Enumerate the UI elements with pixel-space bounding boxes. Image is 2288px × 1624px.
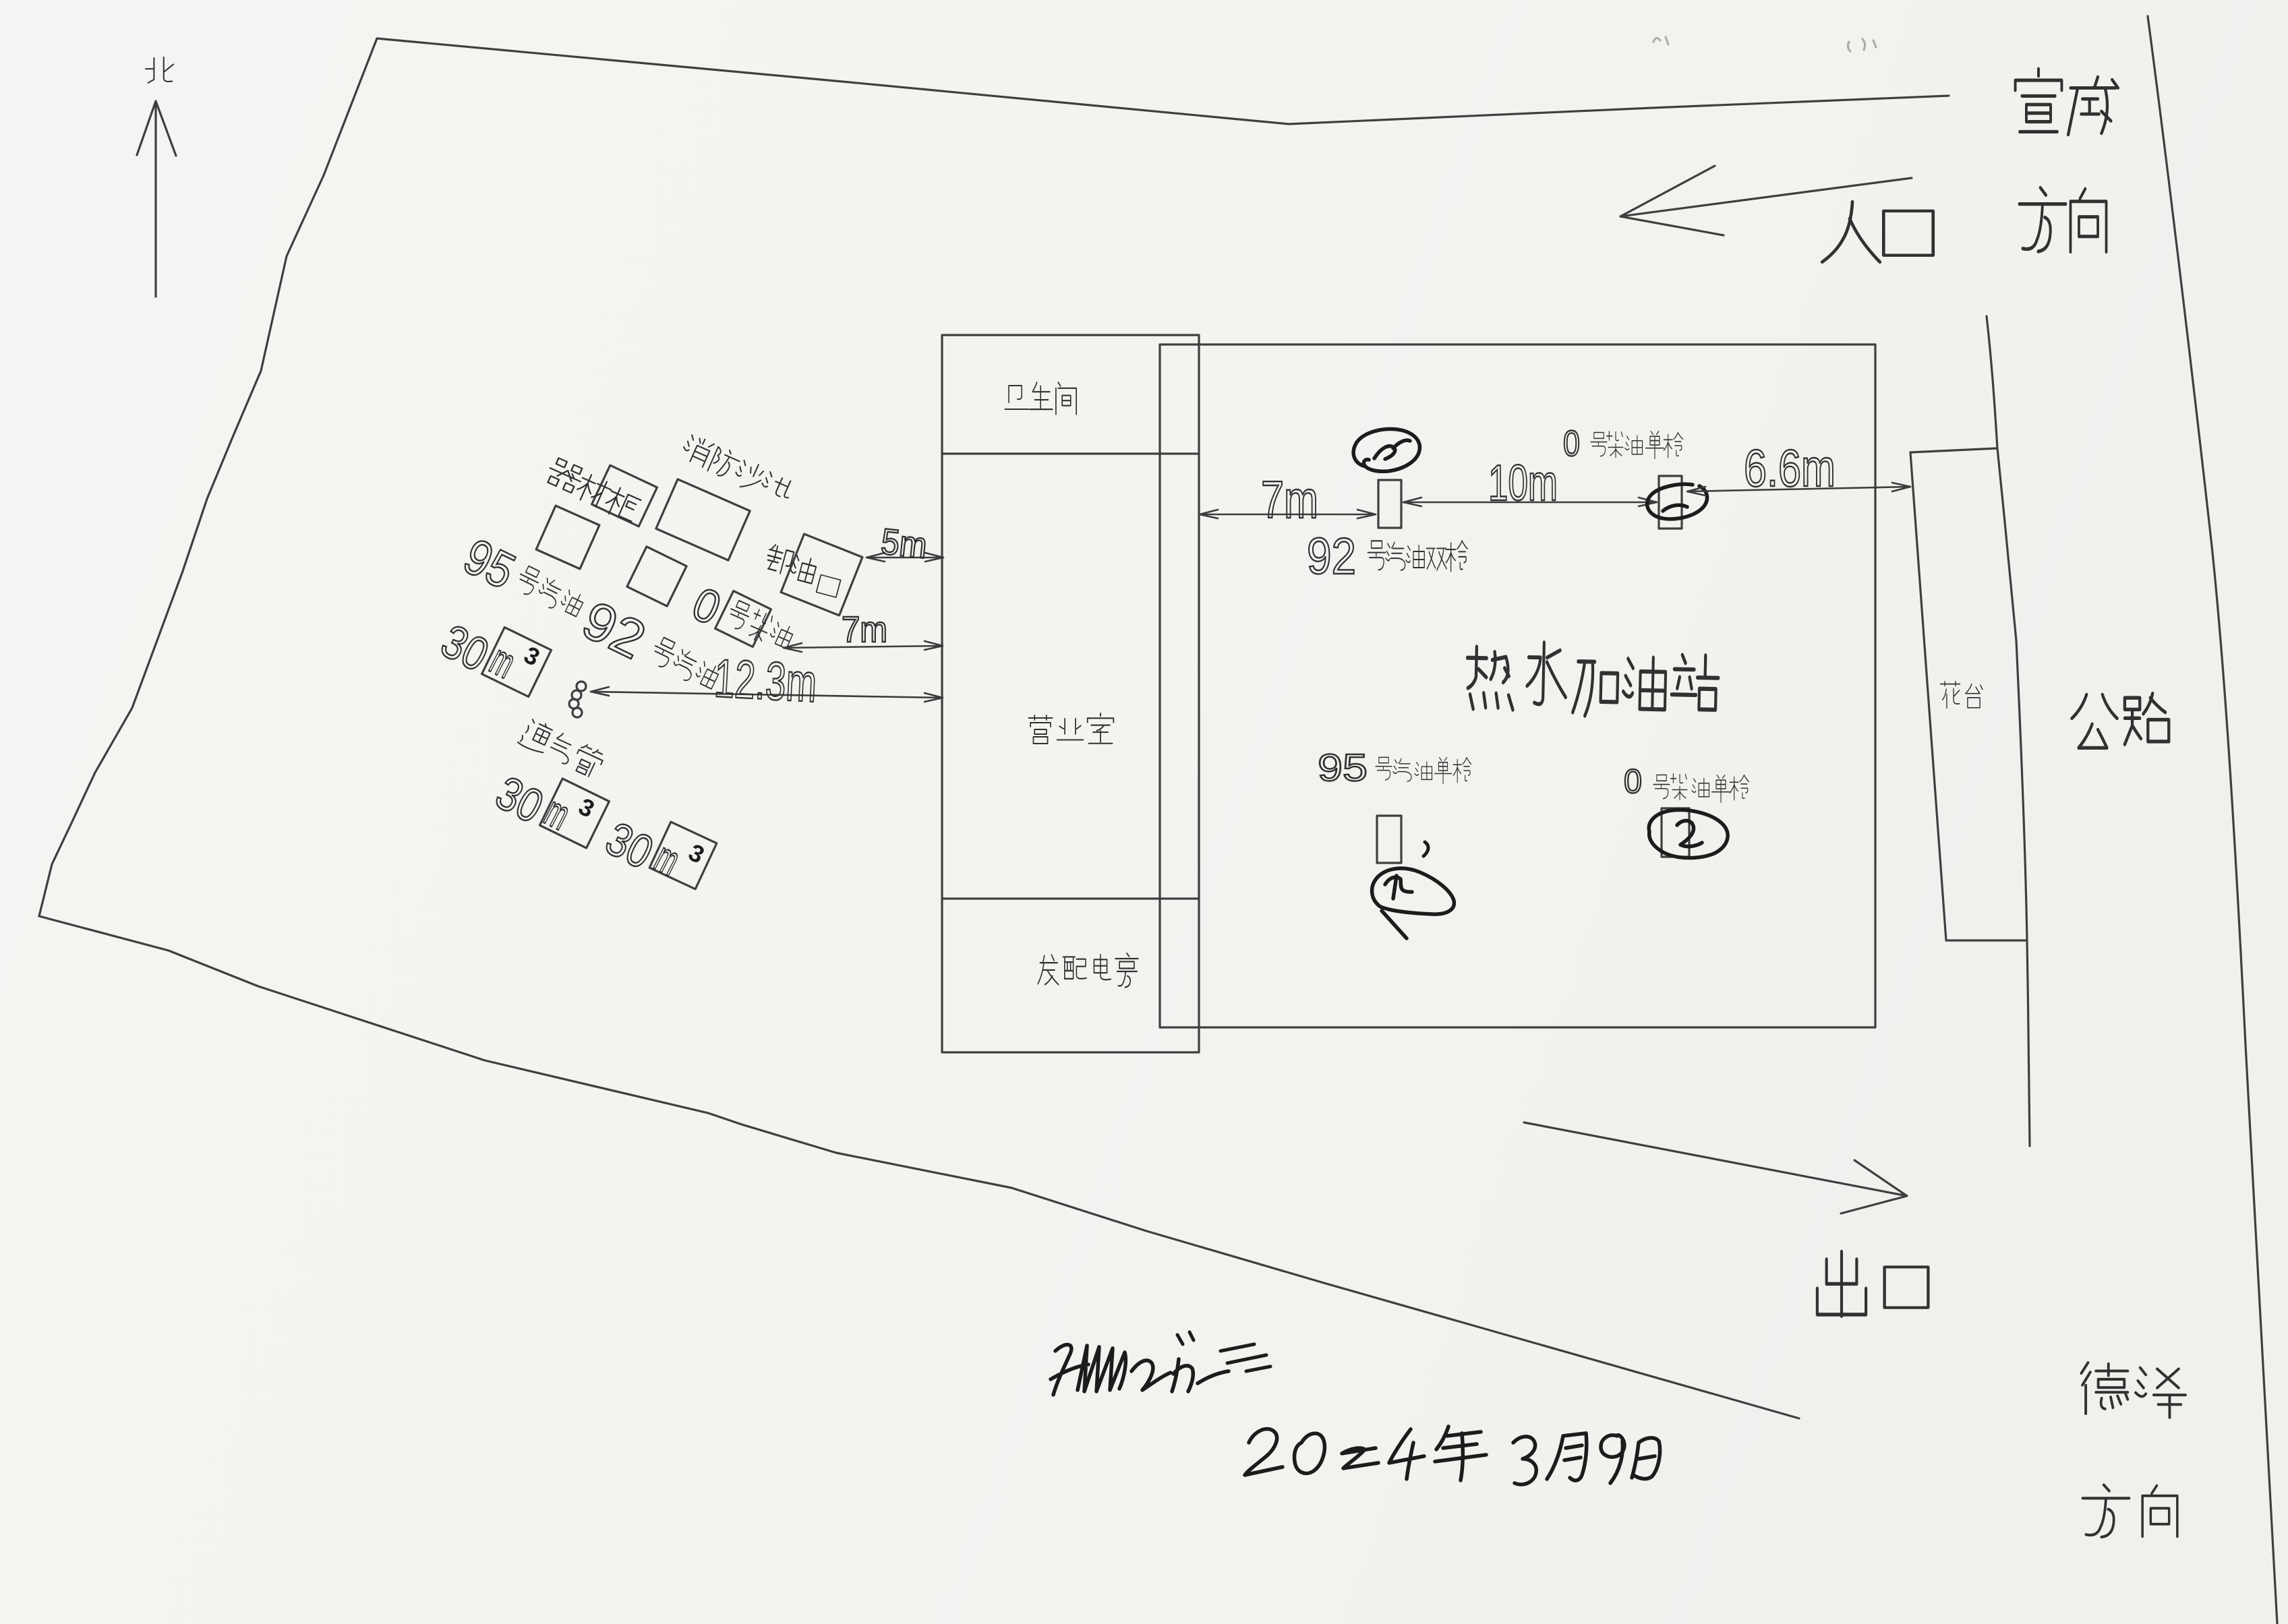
svg-text:95: 95 [1318, 746, 1368, 789]
svg-text:5m: 5m [879, 521, 929, 566]
svg-text:7m: 7m [842, 609, 887, 650]
svg-text:92: 92 [1307, 528, 1356, 585]
svg-text:10m: 10m [1488, 454, 1558, 511]
svg-text:6.6m: 6.6m [1744, 438, 1836, 498]
svg-text:7m: 7m [1261, 470, 1318, 529]
svg-text:0: 0 [1624, 762, 1642, 800]
svg-text:12.3m: 12.3m [713, 648, 818, 713]
svg-text:0: 0 [1563, 423, 1580, 464]
